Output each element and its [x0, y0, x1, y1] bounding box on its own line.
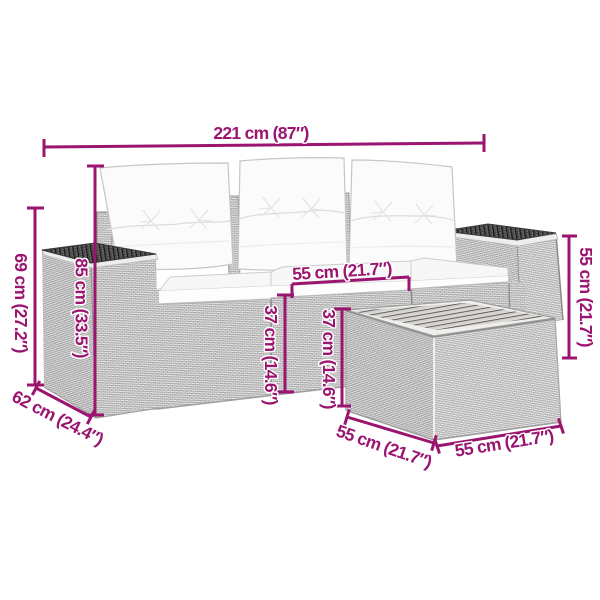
svg-text:37 cm (14.6″): 37 cm (14.6″): [261, 305, 281, 404]
svg-text:55 cm (21.7″): 55 cm (21.7″): [576, 247, 596, 346]
svg-text:69 cm (27.2″): 69 cm (27.2″): [11, 253, 31, 352]
svg-text:37 cm (14.6″): 37 cm (14.6″): [319, 309, 339, 408]
svg-text:85 cm (33.5″): 85 cm (33.5″): [72, 258, 92, 357]
svg-text:221 cm (87″): 221 cm (87″): [213, 123, 308, 143]
